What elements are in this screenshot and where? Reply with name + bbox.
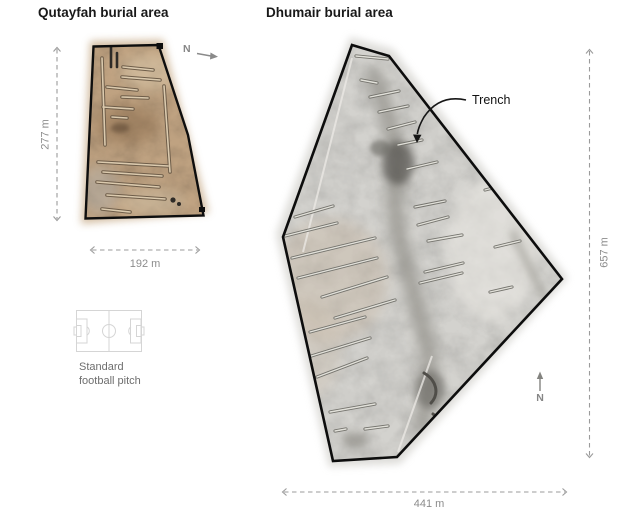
- terrain-dark-spot: [170, 197, 175, 202]
- terrain-dark-spot: [177, 202, 181, 206]
- dhumair-satellite-texture: [258, 35, 570, 467]
- terrain-patch: [342, 432, 368, 448]
- north-arrow-icon: [537, 372, 543, 392]
- dhumair-height-label: 657 m: [599, 230, 612, 276]
- qutayfah-height-label: 277 m: [40, 112, 53, 158]
- qutayfah-panel-title: Qutayfah burial area: [38, 5, 169, 20]
- football-pitch-icon: [74, 311, 144, 352]
- dhumair-height-dimension-line: [586, 50, 593, 458]
- dhumair-map: [258, 35, 570, 467]
- qutayfah-map: [78, 38, 213, 228]
- maps-graphic: [0, 0, 640, 514]
- dhumair-width-dimension-line: [283, 489, 567, 496]
- qutayfah-width-dimension-line: [91, 247, 200, 254]
- qutayfah-width-label: 192 m: [95, 258, 195, 271]
- boundary-tab: [157, 43, 164, 49]
- dhumair-panel-title: Dhumair burial area: [266, 5, 393, 20]
- terrain-patch: [111, 123, 129, 133]
- trench-annotation-label: Trench: [472, 93, 510, 107]
- qutayfah-height-dimension-line: [54, 48, 61, 221]
- qutayfah-satellite-texture: [78, 38, 213, 228]
- dhumair-north-label: N: [534, 392, 546, 404]
- infographic-canvas: Qutayfah burial area Dhumair burial area…: [0, 0, 640, 514]
- football-pitch-legend-label: Standard football pitch: [79, 361, 155, 388]
- qutayfah-north-label: N: [183, 43, 191, 55]
- boundary-tab: [199, 207, 205, 212]
- north-arrow-icon: [197, 53, 218, 60]
- dhumair-width-label: 441 m: [374, 498, 484, 511]
- terrain-patch: [370, 140, 390, 156]
